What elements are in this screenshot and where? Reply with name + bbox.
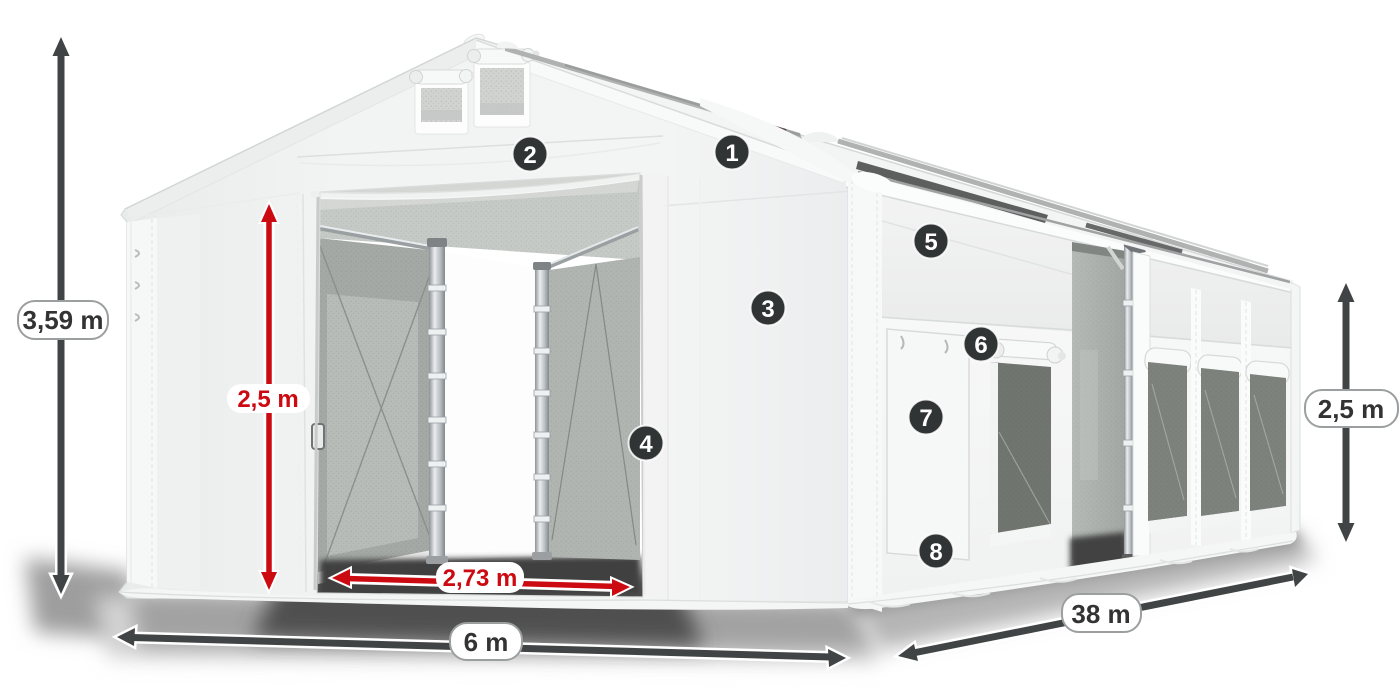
svg-text:2,5 m: 2,5 m	[1318, 394, 1385, 424]
svg-text:2: 2	[523, 142, 536, 169]
svg-text:8: 8	[929, 539, 942, 566]
svg-text:7: 7	[919, 405, 932, 432]
svg-text:6: 6	[974, 332, 987, 359]
svg-text:3,59 m: 3,59 m	[23, 305, 104, 335]
svg-text:6 m: 6 m	[464, 627, 509, 657]
svg-text:1: 1	[725, 140, 738, 167]
svg-text:4: 4	[639, 431, 653, 458]
svg-text:38 m: 38 m	[1071, 599, 1130, 629]
svg-text:3: 3	[761, 296, 774, 323]
svg-text:2,5 m: 2,5 m	[237, 386, 298, 413]
svg-text:2,73 m: 2,73 m	[443, 565, 518, 592]
svg-text:5: 5	[924, 229, 937, 256]
